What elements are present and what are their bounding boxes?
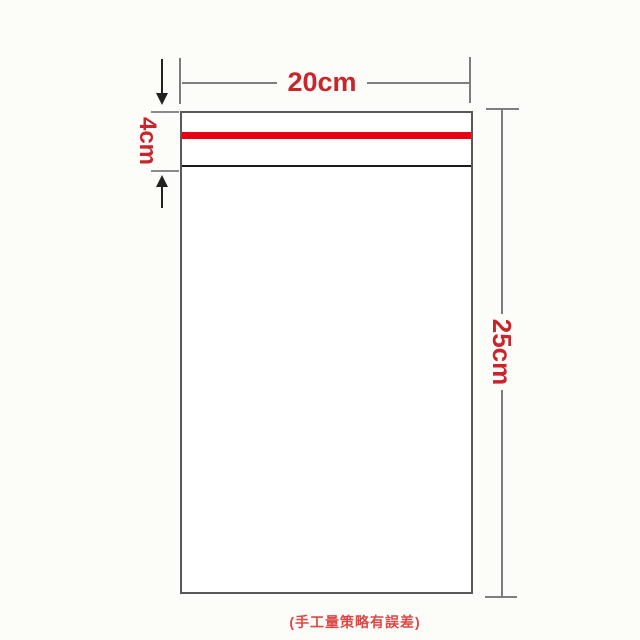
measurement-disclaimer-note: (手工量策略有誤差) <box>235 612 475 632</box>
height-dimension-line-upper <box>501 110 503 314</box>
bag-body-outline <box>180 111 473 594</box>
flap-dimension-top-tick <box>151 111 179 113</box>
bag-dimension-diagram: 20cm 4cm 25cm (手工量策略有誤差) <box>0 0 640 640</box>
adhesive-strip <box>182 132 471 139</box>
flap-fold-line <box>182 165 471 167</box>
height-dimension-label: 25cm <box>488 314 516 390</box>
width-dimension-left-tick <box>179 58 181 104</box>
down-arrow-icon <box>161 59 163 95</box>
width-dimension-right-tick <box>469 57 471 103</box>
height-dimension-bottom-tick <box>485 596 517 598</box>
width-dimension-label: 20cm <box>277 66 367 98</box>
down-arrowhead-icon <box>156 93 168 105</box>
up-arrow-icon <box>161 186 163 208</box>
flap-dimension-label: 4cm <box>134 114 160 168</box>
height-dimension-line-lower <box>501 390 503 597</box>
flap-dimension-bottom-tick <box>151 170 179 172</box>
